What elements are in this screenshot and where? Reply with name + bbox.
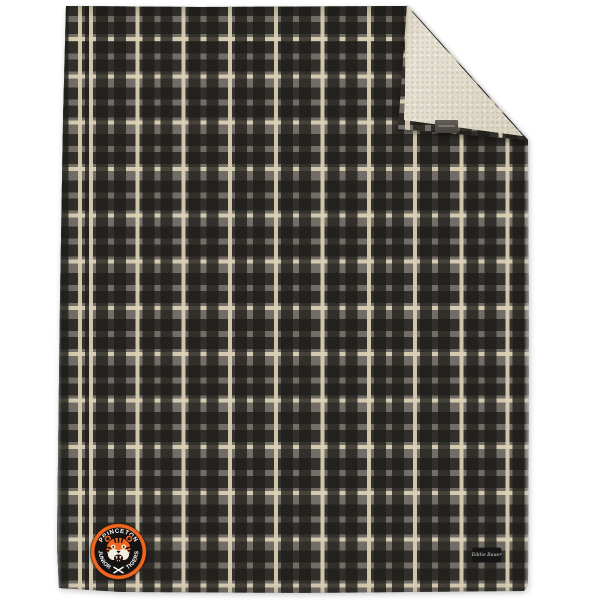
team-badge-patch: PRINCETON JUNIOR TIGERS: [90, 523, 147, 580]
hem-highlight-bottom: [59, 592, 529, 598]
hem-highlight-left: [57, 65, 62, 594]
product-photo: Eddie Bauer PRINCETON JUNIOR TIGERS: [0, 0, 600, 600]
fold-edge-tag-stitching: [438, 125, 455, 127]
brand-label-text: Eddie Bauer: [472, 552, 502, 558]
fold-edge-tag: [435, 120, 458, 133]
brand-label: Eddie Bauer: [473, 548, 501, 562]
hem-highlight-right: [524, 145, 531, 595]
blanket: Eddie Bauer PRINCETON JUNIOR TIGERS: [0, 0, 600, 600]
folded-corner: [395, 0, 535, 146]
